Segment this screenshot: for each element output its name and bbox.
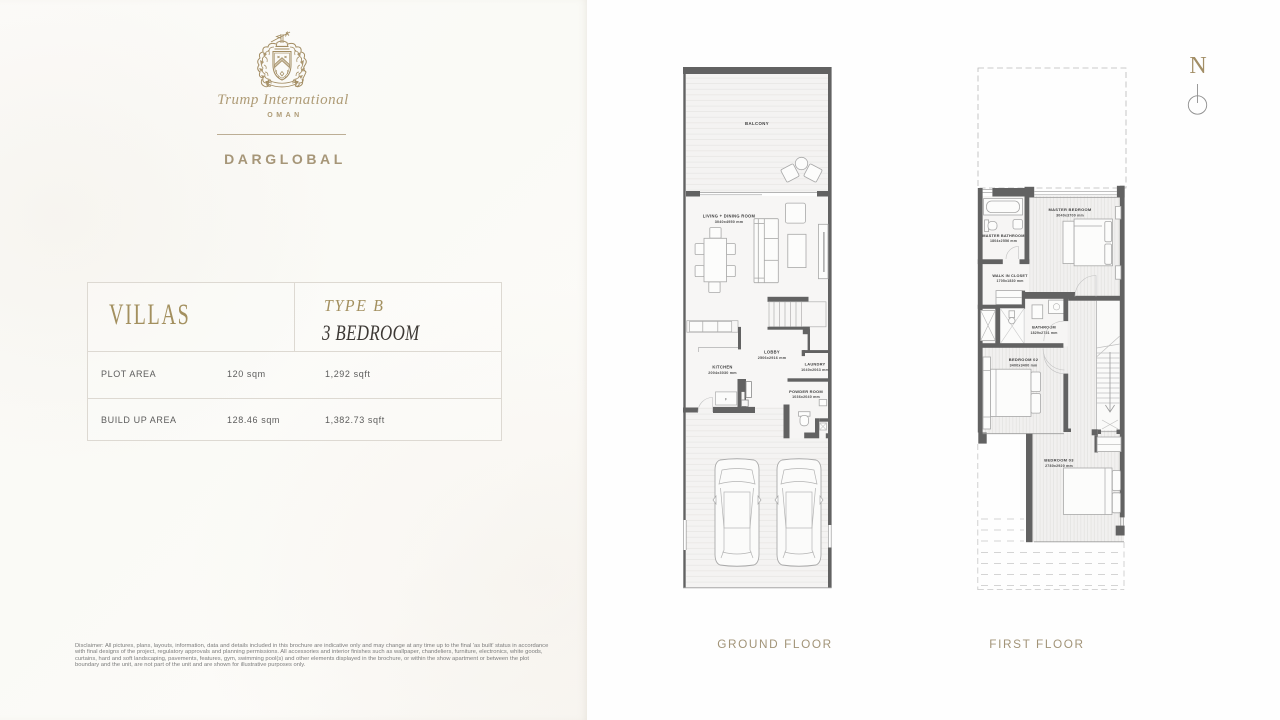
- svg-text:3400x3400 mm: 3400x3400 mm: [1010, 364, 1038, 368]
- svg-text:1804x2556 mm: 1804x2556 mm: [990, 239, 1017, 243]
- svg-text:2004x3030 mm: 2004x3030 mm: [708, 371, 737, 375]
- svg-text:LIVING + DINING ROOM: LIVING + DINING ROOM: [703, 214, 756, 219]
- svg-text:WALK IN CLOSET: WALK IN CLOSET: [992, 274, 1028, 278]
- svg-text:2506x2916 mm: 2506x2916 mm: [758, 356, 787, 360]
- svg-text:1829x2751 mm: 1829x2751 mm: [1030, 331, 1057, 335]
- svg-text:1036x2040 mm: 1036x2040 mm: [792, 395, 820, 399]
- svg-text:MASTER BEDROOM: MASTER BEDROOM: [1048, 207, 1091, 212]
- svg-text:BATHROOM: BATHROOM: [1032, 326, 1056, 330]
- svg-text:3040x3700 mm: 3040x3700 mm: [1056, 214, 1084, 218]
- svg-text:LOBBY: LOBBY: [764, 350, 780, 355]
- svg-text:BEDROOM 02: BEDROOM 02: [1009, 357, 1039, 362]
- svg-text:MASTER BATHROOM: MASTER BATHROOM: [982, 234, 1024, 238]
- svg-text:3040x4950 mm: 3040x4950 mm: [715, 220, 744, 224]
- svg-text:1040x2063 mm: 1040x2063 mm: [801, 368, 829, 372]
- svg-text:KITCHEN: KITCHEN: [712, 365, 732, 370]
- svg-text:BALCONY: BALCONY: [745, 121, 769, 126]
- svg-text:LAUNDRY: LAUNDRY: [805, 362, 826, 367]
- svg-text:2780x2920 mm: 2780x2920 mm: [1045, 464, 1073, 468]
- svg-text:1705x1830 mm: 1705x1830 mm: [996, 279, 1023, 283]
- svg-text:BEDROOM 03: BEDROOM 03: [1044, 458, 1074, 463]
- svg-text:POWDER ROOM: POWDER ROOM: [789, 389, 823, 394]
